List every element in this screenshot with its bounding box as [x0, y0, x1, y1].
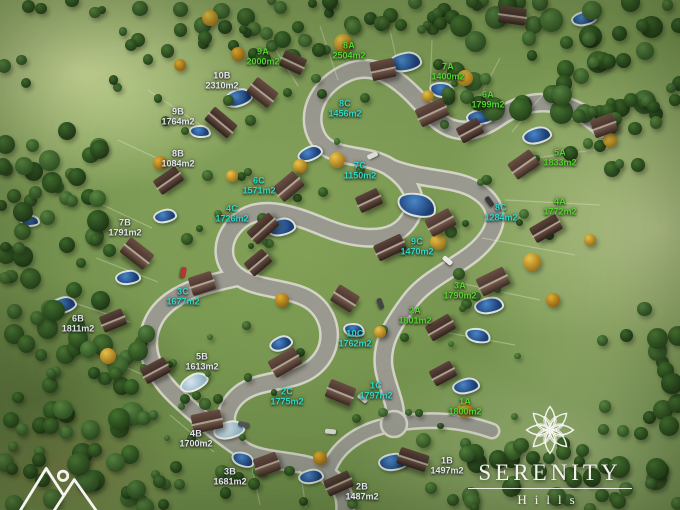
brand-subname: Hills [464, 492, 636, 508]
brand-name: SERENITY [464, 460, 636, 486]
mountains-sun-icon [12, 459, 116, 510]
site-plan: 9A2000m28A2504m210B2310m27A1400m26A1799m… [0, 0, 680, 510]
brand-divider [468, 488, 632, 490]
brand-logo: SERENITY Hills [464, 403, 636, 509]
lotus-mandala-icon [523, 403, 577, 457]
corner-watermark [12, 459, 116, 510]
